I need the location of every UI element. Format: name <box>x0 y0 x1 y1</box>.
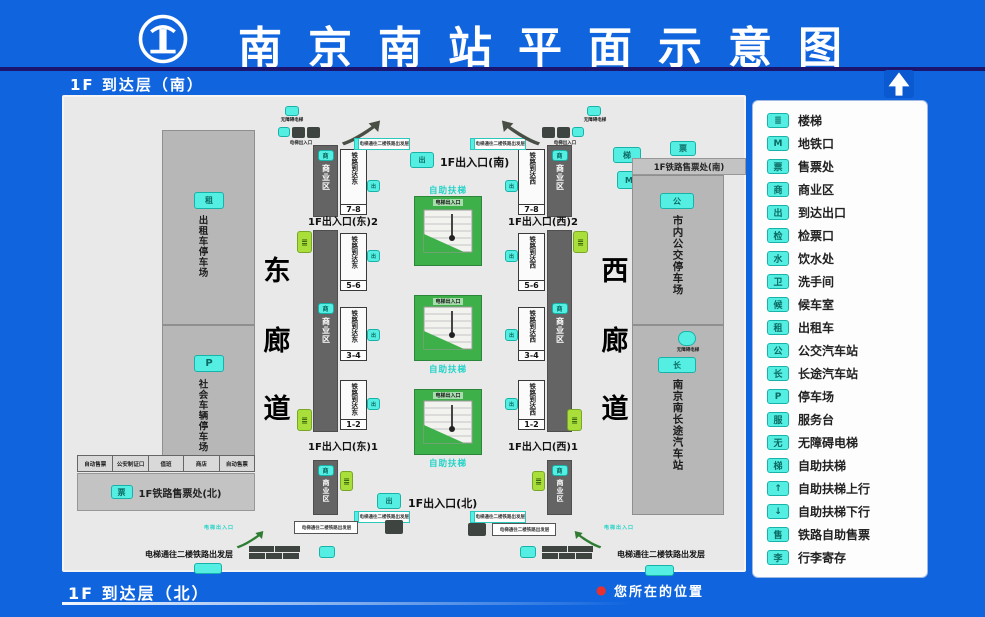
legend-item: ≣ 楼梯 <box>767 112 927 129</box>
commerce-label: 商业区 <box>556 479 563 503</box>
arrival-exit-icon: 出 <box>367 329 380 341</box>
platform-number: 5-6 <box>519 280 544 290</box>
platform-number: 3-4 <box>519 350 544 360</box>
dark-facility-icon <box>249 553 265 559</box>
escalator-entry-label: 电梯出入口 <box>433 392 462 399</box>
room-cell: 自动售票 <box>78 456 113 471</box>
taxi-icon: 租 <box>194 192 224 209</box>
escalator-cyan-label: 自助扶梯 <box>414 457 482 469</box>
commerce-icon: 商 <box>552 465 568 476</box>
commerce-label: 商业区 <box>322 164 330 191</box>
stairs-icon: ≣ <box>532 471 545 491</box>
arrival-exit-icon: 出 <box>505 329 518 341</box>
service-desk-icon: 服 <box>767 412 789 427</box>
floor-label-south: 1F 到达层（南） <box>70 74 204 95</box>
room-cell: 值班 <box>149 456 184 471</box>
commerce-icon: 商 <box>552 303 568 314</box>
escalator-entry-label: 电梯出入口 <box>433 199 462 206</box>
legend-item: 租 出租车 <box>767 319 927 336</box>
escalator-down-icon: ↓ <box>767 504 789 519</box>
dark-facility-icon <box>275 546 300 552</box>
elevator-entry-cyan-label: 电梯出入口 <box>604 524 634 531</box>
dark-facility-icon <box>559 553 575 559</box>
platform-label: 铁路到达东 <box>350 234 357 280</box>
legend-item: 公 公交汽车站 <box>767 342 927 359</box>
accessible-elevator-label: 无障碍电梯 <box>664 347 712 353</box>
legend-item: 长 长途汽车站 <box>767 365 927 382</box>
platform-label: 铁路到达西 <box>528 381 535 419</box>
station-floor-map: 租 出租车停车场 P 社会车辆停车场 自动售票 公安制证口 值班 商店 自动售票… <box>62 95 746 572</box>
commerce-bar-east-3: 商 商业区 <box>313 460 338 515</box>
ticket-office-south: 1F铁路售票处(南) <box>632 158 746 175</box>
dark-facility-icon <box>542 127 555 138</box>
bus-station-icon: 公 <box>660 193 694 209</box>
legend-item: 服 服务台 <box>767 411 927 428</box>
stairs-icon: ≣ <box>340 471 353 491</box>
legend-item: M 地铁口 <box>767 135 927 152</box>
arrival-exit-icon: 出 <box>367 398 380 410</box>
commerce-label: 商业区 <box>322 317 330 344</box>
cyan-facility-icon <box>520 546 536 558</box>
platform-arrival-west-5-6: 铁路到达西 5-6 <box>518 233 545 291</box>
city-bus-parking-label: 市内公交停车场 <box>672 215 683 296</box>
coach-station-icon: 长 <box>767 366 789 381</box>
elevator-entry-label: 电梯出入口 <box>280 140 322 146</box>
commerce-label: 商业区 <box>322 479 329 503</box>
up-arrow-icon <box>884 70 914 98</box>
escalator-graphic <box>418 399 478 447</box>
platform-label: 铁路到达西 <box>528 150 535 204</box>
legend-item: 李 行李寄存 <box>767 549 927 566</box>
exit-east-2-label: 1F出入口(东)2 <box>288 213 398 228</box>
room-cell: 自动售票 <box>220 456 254 471</box>
ticket-office-icon: 票 <box>767 159 789 174</box>
dark-facility-icon <box>576 553 592 559</box>
platform-arrival-east-3-4: 铁路到达东 3-4 <box>340 307 367 361</box>
legend-item: 票 售票处 <box>767 158 927 175</box>
cyan-facility-icon <box>645 565 674 576</box>
station-map-poster: 南京南站平面示意图 1F 到达层（南） 租 出租车停车场 P 社会车辆停车场 自… <box>0 0 985 617</box>
facility-icon-row <box>542 546 596 559</box>
commerce-icon: 商 <box>318 303 334 314</box>
elevator-entry-label: 电梯出入口 <box>544 140 586 146</box>
legend-item: 卫 洗手间 <box>767 273 927 290</box>
escalator-area: 电梯出入口 <box>414 196 482 266</box>
dark-facility-icon <box>468 523 486 536</box>
elevator-note: 电梯通往二楼铁路出发层 <box>301 525 352 531</box>
water-icon: 水 <box>767 251 789 266</box>
parking-icon: P <box>767 389 789 404</box>
escalator-icon: 梯 <box>767 458 789 473</box>
exit-west-1-label: 1F出入口(西)1 <box>488 438 598 453</box>
elevator-note: 电梯通往二楼铁路出发层 <box>617 549 705 560</box>
commerce-label: 商业区 <box>556 317 564 344</box>
stairs-icon: ≣ <box>297 231 312 253</box>
left-parking-zone <box>162 130 255 457</box>
facility-icon-row <box>278 127 320 138</box>
escalator-up-icon: ↑ <box>767 481 789 496</box>
header-divider <box>0 67 985 71</box>
footer-underline <box>62 602 632 605</box>
east-corridor-char: 东 <box>262 249 292 288</box>
west-corridor-char: 廊 <box>600 319 630 358</box>
escalator-swoosh-icon <box>500 117 542 147</box>
cyan-facility-icon <box>278 127 290 137</box>
metro-icon: M <box>767 136 789 151</box>
platform-arrival-east-7-8: 铁路到达东 7-8 <box>340 149 367 215</box>
cyan-facility-icon <box>319 546 335 558</box>
platform-number: 5-6 <box>341 280 366 290</box>
platform-number: 1-2 <box>519 419 544 429</box>
platform-label: 铁路到达西 <box>528 234 535 280</box>
waiting-room-icon: 候 <box>767 297 789 312</box>
ticket-office-icon: 票 <box>111 485 133 499</box>
arrival-exit-icon: 出 <box>505 398 518 410</box>
coach-station-icon: 长 <box>658 357 696 373</box>
arrival-exit-icon: 出 <box>767 205 789 220</box>
service-rooms-row: 自动售票 公安制证口 值班 商店 自动售票 <box>77 455 255 472</box>
dark-facility-icon <box>542 546 567 552</box>
stairs-icon: ≣ <box>573 231 588 253</box>
legend-item: 梯 自助扶梯 <box>767 457 927 474</box>
current-location-marker: ● <box>596 583 606 597</box>
legend-item: 检 检票口 <box>767 227 927 244</box>
legend-item: 候 候车室 <box>767 296 927 313</box>
escalator-cyan-label: 自助扶梯 <box>414 184 482 196</box>
ticket-office-north: 票 1F铁路售票处(北) <box>77 473 255 511</box>
arrival-exit-icon: 出 <box>367 180 380 192</box>
accessible-elevator-icon <box>285 106 299 116</box>
escalator-entry-label: 电梯出入口 <box>433 298 462 305</box>
elevator-note: 电梯通往二楼铁路出发层 <box>145 549 233 560</box>
dark-facility-icon <box>568 546 593 552</box>
commerce-bar-west-2: 商 商业区 <box>547 230 572 432</box>
platform-label: 铁路到达西 <box>528 308 535 350</box>
escalator-area: 电梯出入口 <box>414 295 482 361</box>
accessible-elevator-label: 无障碍电梯 <box>569 117 621 123</box>
dark-facility-icon <box>249 546 274 552</box>
taxi-parking-label: 出租车停车场 <box>197 215 207 278</box>
arrival-exit-icon: 出 <box>505 250 518 262</box>
exit-west-2-label: 1F出入口(西)2 <box>488 213 598 228</box>
bus-station-icon: 公 <box>767 343 789 358</box>
accessible-elevator-icon <box>678 331 696 346</box>
platform-number: 1-2 <box>341 419 366 429</box>
legend-item: P 停车场 <box>767 388 927 405</box>
platform-number: 3-4 <box>341 350 366 360</box>
platform-arrival-east-5-6: 铁路到达东 5-6 <box>340 233 367 291</box>
check-gate-icon: 检 <box>767 228 789 243</box>
platform-arrival-east-1-2: 铁路到达东 1-2 <box>340 380 367 430</box>
east-corridor-char: 廊 <box>262 319 292 358</box>
commerce-icon: 商 <box>767 182 789 197</box>
commerce-icon: 商 <box>318 150 334 161</box>
commerce-label: 商业区 <box>556 164 564 191</box>
legend-item: 售 铁路自助售票 <box>767 526 927 543</box>
transport-zone-divider <box>632 324 724 326</box>
elevator-note-box: 电梯通往二楼铁路出发层 <box>294 521 358 534</box>
elevator-note: 电梯通往二楼铁路出发层 <box>359 141 410 147</box>
legend-item: 商 商业区 <box>767 181 927 198</box>
commerce-bar-east-2: 商 商业区 <box>313 230 338 432</box>
commerce-icon: 商 <box>318 465 334 476</box>
commerce-icon: 商 <box>552 150 568 161</box>
commerce-bar-west-3: 商 商业区 <box>547 460 572 515</box>
legend-item: ↓ 自助扶梯下行 <box>767 503 927 520</box>
legend-item: 水 饮水处 <box>767 250 927 267</box>
accessible-elevator-icon <box>587 106 601 116</box>
arrival-exit-icon: 出 <box>367 250 380 262</box>
rail-self-ticket-icon: 售 <box>767 527 789 542</box>
taxi-icon: 租 <box>767 320 789 335</box>
ticket-office-south-label: 1F铁路售票处(南) <box>654 161 725 173</box>
escalator-graphic <box>418 206 478 258</box>
cyan-facility-icon <box>572 127 584 137</box>
exit-east-1-label: 1F出入口(东)1 <box>288 438 398 453</box>
platform-arrival-west-3-4: 铁路到达西 3-4 <box>518 307 545 361</box>
parking-zone-divider <box>162 324 255 326</box>
dark-facility-icon <box>542 553 558 559</box>
elevator-note-box: 电梯通往二楼铁路出发层 <box>354 138 410 150</box>
parking-icon: P <box>194 355 224 372</box>
north-arrow-button <box>884 70 914 98</box>
legend-item: 出 到达出口 <box>767 204 927 221</box>
platform-label: 铁路到达东 <box>350 381 357 419</box>
dark-facility-icon <box>283 553 299 559</box>
facility-icon-row <box>542 127 584 138</box>
luggage-icon: 李 <box>767 550 789 565</box>
legend-item: ↑ 自助扶梯上行 <box>767 480 927 497</box>
elevator-note-box: 电梯通往二楼铁路出发层 <box>492 523 556 536</box>
floor-label-north: 1F 到达层（北） <box>68 580 210 604</box>
exit-south-label: 1F出入口(南) <box>440 154 509 170</box>
escalator-graphic <box>418 305 478 353</box>
arrival-exit-icon: 出 <box>505 180 518 192</box>
dark-facility-icon <box>292 127 305 138</box>
stairs-icon: ≣ <box>297 409 312 431</box>
legend-panel: ≣ 楼梯 M 地铁口 票 售票处 商 商业区 出 到达出口 检 检票口 水 饮水… <box>752 100 928 578</box>
dark-facility-icon <box>307 127 320 138</box>
room-cell: 商店 <box>184 456 219 471</box>
arrival-exit-icon: 出 <box>377 493 401 509</box>
east-corridor-char: 道 <box>262 387 292 426</box>
stairs-icon: ≣ <box>567 409 582 431</box>
elevator-note: 电梯通往二楼铁路出发层 <box>475 514 526 520</box>
social-parking-label: 社会车辆停车场 <box>197 379 207 453</box>
ticket-office-north-label: 1F铁路售票处(北) <box>139 485 222 500</box>
facility-icon-row <box>249 546 303 559</box>
elevator-note-box: 电梯通往二楼铁路出发层 <box>470 511 526 523</box>
west-corridor-char: 西 <box>600 249 630 288</box>
stairs-icon: ≣ <box>767 113 789 128</box>
arrival-exit-icon: 出 <box>410 152 434 168</box>
platform-label: 铁路到达东 <box>350 150 357 204</box>
platform-arrival-west-1-2: 铁路到达西 1-2 <box>518 380 545 430</box>
ticket-office-icon: 票 <box>670 141 696 156</box>
commerce-bar-east-1: 商 商业区 <box>313 145 338 217</box>
restroom-icon: 卫 <box>767 274 789 289</box>
dark-facility-icon <box>557 127 570 138</box>
exit-north-label: 1F出入口(北) <box>408 495 477 511</box>
platform-label: 铁路到达东 <box>350 308 357 350</box>
dark-facility-icon <box>266 553 282 559</box>
elevator-note: 电梯通往二楼铁路出发层 <box>499 527 550 533</box>
accessible-elevator-icon: 无 <box>767 435 789 450</box>
commerce-bar-west-1: 商 商业区 <box>547 145 572 217</box>
legend-item: 无 无障碍电梯 <box>767 434 927 451</box>
current-location-label: 您所在的位置 <box>614 581 704 600</box>
cyan-facility-icon <box>194 563 222 574</box>
escalator-cyan-label: 自助扶梯 <box>414 363 482 375</box>
room-cell: 公安制证口 <box>113 456 148 471</box>
coach-station-label: 南京南长途汽车站 <box>672 379 683 471</box>
china-railway-logo <box>136 12 190 66</box>
accessible-elevator-label: 无障碍电梯 <box>266 117 318 123</box>
dark-facility-icon <box>385 520 403 534</box>
escalator-area: 电梯出入口 <box>414 389 482 455</box>
west-corridor-char: 道 <box>600 387 630 426</box>
platform-arrival-west-7-8: 铁路到达西 7-8 <box>518 149 545 215</box>
